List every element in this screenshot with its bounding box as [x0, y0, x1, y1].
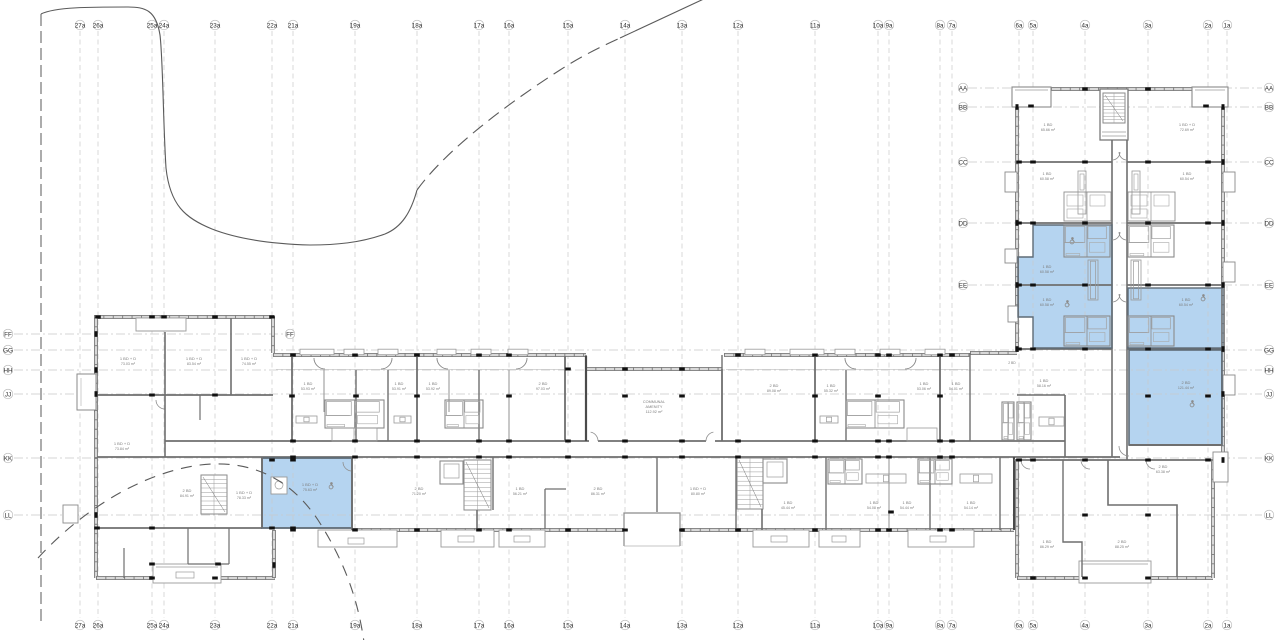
svg-text:16a: 16a	[504, 22, 515, 29]
svg-text:2 BD: 2 BD	[1008, 361, 1016, 365]
svg-text:1 BD: 1 BD	[1043, 539, 1052, 544]
svg-text:2 BD: 2 BD	[539, 381, 548, 386]
svg-text:21a: 21a	[288, 622, 299, 629]
svg-text:5a: 5a	[1029, 22, 1037, 29]
svg-text:14a: 14a	[620, 22, 631, 29]
svg-text:21a: 21a	[288, 22, 299, 29]
svg-text:56.21 m²: 56.21 m²	[513, 492, 528, 496]
svg-text:1 BD + D: 1 BD + D	[120, 356, 136, 361]
svg-text:13a: 13a	[677, 622, 688, 629]
svg-text:14a: 14a	[620, 622, 631, 629]
svg-text:53.06 m²: 53.06 m²	[917, 387, 932, 391]
svg-text:2a: 2a	[1204, 622, 1212, 629]
svg-text:1 BD: 1 BD	[1183, 171, 1192, 176]
svg-text:1 BD: 1 BD	[395, 381, 404, 386]
svg-text:15a: 15a	[563, 622, 574, 629]
svg-text:HH: HH	[1264, 367, 1274, 374]
svg-text:23a: 23a	[210, 22, 221, 29]
svg-text:11a: 11a	[810, 622, 821, 629]
svg-text:58.16 m²: 58.16 m²	[1037, 384, 1052, 388]
svg-text:121.44 m²: 121.44 m²	[1178, 386, 1195, 390]
svg-text:GG: GG	[1264, 347, 1274, 354]
svg-text:EE: EE	[1265, 282, 1273, 289]
svg-text:5a: 5a	[1029, 622, 1037, 629]
svg-text:1 BD: 1 BD	[827, 383, 836, 388]
svg-text:26a: 26a	[93, 22, 104, 29]
svg-text:19a: 19a	[350, 622, 361, 629]
svg-text:1 BD + D: 1 BD + D	[1179, 122, 1195, 127]
svg-text:25a: 25a	[147, 622, 158, 629]
svg-text:1a: 1a	[1223, 22, 1231, 29]
svg-text:2 BD: 2 BD	[415, 486, 424, 491]
svg-text:12a: 12a	[733, 622, 744, 629]
svg-text:2a: 2a	[1204, 22, 1212, 29]
svg-text:24a: 24a	[159, 622, 170, 629]
svg-text:BB: BB	[959, 104, 967, 111]
svg-text:1 BD + D: 1 BD + D	[690, 486, 706, 491]
svg-text:75.63 m²: 75.63 m²	[303, 488, 318, 492]
svg-text:27a: 27a	[75, 622, 86, 629]
svg-text:71.20 m²: 71.20 m²	[412, 492, 427, 496]
svg-text:HH: HH	[3, 367, 13, 374]
svg-text:2 BD: 2 BD	[1159, 464, 1168, 469]
svg-text:11a: 11a	[810, 22, 821, 29]
svg-text:COMMUNAL: COMMUNAL	[643, 400, 665, 404]
svg-text:54.44 m²: 54.44 m²	[900, 506, 915, 510]
svg-text:16a: 16a	[504, 622, 515, 629]
svg-text:1a: 1a	[1223, 622, 1231, 629]
svg-text:26a: 26a	[93, 622, 104, 629]
svg-text:84.91 m²: 84.91 m²	[180, 494, 195, 498]
svg-text:4a: 4a	[1081, 22, 1089, 29]
svg-text:27a: 27a	[75, 22, 86, 29]
svg-text:3a: 3a	[1144, 622, 1152, 629]
svg-text:1 BD: 1 BD	[429, 381, 438, 386]
svg-text:97.03 m²: 97.03 m²	[536, 387, 551, 391]
svg-text:18a: 18a	[412, 622, 423, 629]
svg-text:45.44 m²: 45.44 m²	[781, 506, 796, 510]
svg-text:10a: 10a	[873, 622, 884, 629]
svg-text:CC: CC	[1264, 159, 1274, 166]
svg-text:74.55 m²: 74.55 m²	[242, 362, 257, 366]
svg-text:4a: 4a	[1081, 622, 1089, 629]
svg-text:1 BD + D: 1 BD + D	[186, 356, 202, 361]
svg-text:86.31 m²: 86.31 m²	[591, 492, 606, 496]
svg-text:1 BD: 1 BD	[1040, 378, 1049, 383]
svg-text:13a: 13a	[677, 22, 688, 29]
svg-text:BB: BB	[1265, 104, 1273, 111]
svg-text:10a: 10a	[873, 22, 884, 29]
svg-text:60.54 m²: 60.54 m²	[1179, 303, 1194, 307]
svg-text:6a: 6a	[1015, 22, 1023, 29]
svg-text:80.80 m²: 80.80 m²	[691, 492, 706, 496]
svg-text:83.54 m²: 83.54 m²	[187, 362, 202, 366]
svg-text:AA: AA	[1265, 85, 1274, 92]
svg-text:DD: DD	[1264, 220, 1274, 227]
svg-text:55.32 m²: 55.32 m²	[824, 389, 839, 393]
svg-text:LL: LL	[4, 512, 12, 519]
svg-text:8a: 8a	[936, 22, 944, 29]
svg-text:112.92 m²: 112.92 m²	[646, 410, 664, 414]
svg-text:DD: DD	[958, 220, 968, 227]
svg-text:60.58 m²: 60.58 m²	[1040, 270, 1055, 274]
svg-text:FF: FF	[286, 331, 294, 338]
svg-text:GG: GG	[3, 347, 13, 354]
svg-text:1 BD: 1 BD	[1043, 264, 1052, 269]
svg-text:65.66 m²: 65.66 m²	[1041, 128, 1056, 132]
svg-text:53.91 m²: 53.91 m²	[392, 387, 407, 391]
svg-text:3a: 3a	[1144, 22, 1152, 29]
svg-text:2 BD: 2 BD	[594, 486, 603, 491]
svg-text:60.54 m²: 60.54 m²	[1180, 177, 1195, 181]
svg-text:1 BD: 1 BD	[920, 381, 929, 386]
svg-text:KK: KK	[1265, 455, 1274, 462]
svg-text:9a: 9a	[885, 22, 893, 29]
svg-text:60.58 m²: 60.58 m²	[1040, 303, 1055, 307]
svg-text:54.08 m²: 54.08 m²	[867, 506, 882, 510]
svg-text:23a: 23a	[210, 622, 221, 629]
svg-text:JJ: JJ	[5, 391, 11, 398]
svg-text:1 BD: 1 BD	[967, 500, 976, 505]
svg-text:1 BD + D: 1 BD + D	[302, 482, 318, 487]
svg-text:2 BD: 2 BD	[1118, 539, 1127, 544]
svg-text:86.29 m²: 86.29 m²	[1040, 545, 1055, 549]
svg-text:2 BD: 2 BD	[1182, 380, 1191, 385]
svg-text:1 BD: 1 BD	[1043, 171, 1052, 176]
svg-text:8a: 8a	[936, 622, 944, 629]
svg-text:1 BD: 1 BD	[870, 500, 879, 505]
svg-text:18a: 18a	[412, 22, 423, 29]
svg-text:JJ: JJ	[1266, 391, 1272, 398]
svg-text:17a: 17a	[474, 622, 485, 629]
svg-text:53.93 m²: 53.93 m²	[301, 387, 316, 391]
svg-text:88.25 m²: 88.25 m²	[1115, 545, 1130, 549]
svg-text:2 BD: 2 BD	[183, 488, 192, 493]
svg-text:1 BD: 1 BD	[516, 486, 525, 491]
svg-text:1 BD: 1 BD	[304, 381, 313, 386]
svg-text:7a: 7a	[948, 22, 956, 29]
svg-text:60.58 m²: 60.58 m²	[1040, 177, 1055, 181]
svg-text:1 BD: 1 BD	[1043, 297, 1052, 302]
svg-text:78.33 m²: 78.33 m²	[237, 496, 252, 500]
svg-text:1 BD: 1 BD	[1044, 122, 1053, 127]
svg-text:1 BD + D: 1 BD + D	[241, 356, 257, 361]
svg-text:1 BD + D: 1 BD + D	[114, 441, 130, 446]
svg-text:53.92 m²: 53.92 m²	[426, 387, 441, 391]
svg-text:24a: 24a	[159, 22, 170, 29]
svg-text:EE: EE	[959, 282, 967, 289]
svg-text:7a: 7a	[948, 622, 956, 629]
svg-text:73.84 m²: 73.84 m²	[115, 447, 130, 451]
svg-text:54.01 m²: 54.01 m²	[949, 387, 964, 391]
svg-text:KK: KK	[4, 455, 13, 462]
svg-text:22a: 22a	[267, 22, 278, 29]
svg-text:15a: 15a	[563, 22, 574, 29]
svg-text:9a: 9a	[885, 622, 893, 629]
svg-text:25a: 25a	[147, 22, 158, 29]
svg-text:1 BD: 1 BD	[952, 381, 961, 386]
svg-text:63.38 m²: 63.38 m²	[1156, 470, 1171, 474]
svg-text:89.08 m²: 89.08 m²	[767, 389, 782, 393]
svg-text:73.03 m²: 73.03 m²	[121, 362, 136, 366]
svg-text:22a: 22a	[267, 622, 278, 629]
svg-text:54.14 m²: 54.14 m²	[964, 506, 979, 510]
svg-text:AMENITY: AMENITY	[646, 405, 663, 409]
svg-text:FF: FF	[4, 331, 12, 338]
svg-text:1 BD: 1 BD	[1182, 297, 1191, 302]
svg-text:17a: 17a	[474, 22, 485, 29]
svg-text:1 BD: 1 BD	[784, 500, 793, 505]
svg-text:CC: CC	[958, 159, 968, 166]
svg-text:12a: 12a	[733, 22, 744, 29]
svg-text:2 BD: 2 BD	[770, 383, 779, 388]
svg-text:72.69 m²: 72.69 m²	[1180, 128, 1195, 132]
svg-text:AA: AA	[959, 85, 968, 92]
svg-text:1 BD: 1 BD	[903, 500, 912, 505]
svg-text:19a: 19a	[350, 22, 361, 29]
svg-text:6a: 6a	[1015, 622, 1023, 629]
svg-text:LL: LL	[1265, 512, 1273, 519]
svg-text:1 BD + D: 1 BD + D	[236, 490, 252, 495]
